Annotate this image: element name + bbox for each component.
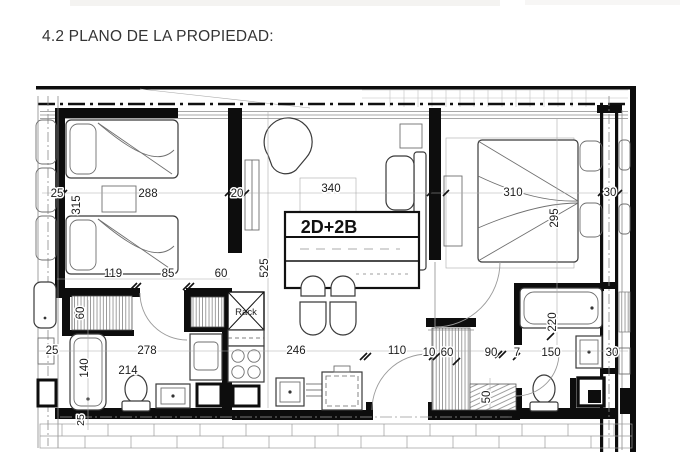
dim-b2-wall: 30 xyxy=(604,187,617,199)
bedroom-2 xyxy=(444,138,602,268)
dim-b1-width: 288 xyxy=(138,188,157,200)
pillow xyxy=(580,141,602,171)
dim-bath1-bottom: 25 xyxy=(75,414,87,426)
oven xyxy=(190,334,222,380)
closet-right xyxy=(191,297,224,327)
dim-entry-a: 10 xyxy=(423,347,436,359)
dim-living-width: 340 xyxy=(321,183,340,195)
sofa-cushion xyxy=(386,156,414,210)
stove xyxy=(228,346,264,382)
entry-door-arc xyxy=(372,354,428,410)
dim-b2-width: 310 xyxy=(503,187,522,199)
bedroom2-door-arc xyxy=(435,262,500,327)
washer xyxy=(197,384,221,406)
brick-strip xyxy=(40,424,632,448)
dim-b1-door: 85 xyxy=(162,268,175,280)
single-bed-2 xyxy=(66,216,178,274)
dim-entry-d: 7 xyxy=(514,347,520,359)
single-bed-1 xyxy=(66,120,178,178)
neighbor-pillow xyxy=(619,140,630,170)
dim-entry-c: 90 xyxy=(485,347,498,359)
rack-label: Rack xyxy=(235,307,257,318)
unit-type-label: 2D+2B xyxy=(301,217,358,237)
dim-b1-wall-left: 25 xyxy=(51,188,64,200)
dim-bath2-wall: 30 xyxy=(606,347,619,359)
bathtub-2 xyxy=(520,288,602,328)
pillow xyxy=(580,203,602,237)
bath1-door-arc xyxy=(140,293,187,340)
document-page: 4.2 PLANO DE LA PROPIEDAD: xyxy=(0,0,680,467)
dim-entry-door: 110 xyxy=(388,345,406,357)
entry-closet xyxy=(432,328,470,410)
dim-bath2-sink: 150 xyxy=(541,347,560,359)
left-neighbor-strip xyxy=(34,96,58,448)
right-neighbor-strip xyxy=(609,96,630,450)
washing-machine xyxy=(322,366,362,410)
toilet-1 xyxy=(125,375,147,403)
dresser xyxy=(444,176,462,246)
floor-plan: 25 315 288 20 119 85 60 60 340 525 310 2… xyxy=(0,0,680,467)
dim-kitchen-width: 246 xyxy=(286,345,305,357)
kitchen-sink xyxy=(276,378,304,406)
side-table xyxy=(400,124,422,148)
dim-neighbor-left: 25 xyxy=(46,345,59,357)
dim-b1-depth: 315 xyxy=(71,195,83,214)
dim-entry-closet: 50 xyxy=(481,391,493,404)
dim-b1-wall-right: 20 xyxy=(231,188,244,200)
toilet-2 xyxy=(533,375,555,403)
dim-entry-b: 60 xyxy=(441,347,454,359)
neighbor-pillow xyxy=(619,204,630,234)
dim-closet-depth: 60 xyxy=(75,307,87,320)
shaft xyxy=(578,378,604,406)
dim-bath1-tub: 140 xyxy=(79,358,91,377)
dim-bath1-toilet: 214 xyxy=(118,365,138,377)
dim-b1-closet-right: 60 xyxy=(215,268,228,280)
nightstand xyxy=(102,186,136,212)
dim-living-depth: 525 xyxy=(259,258,271,277)
counter-cabinet xyxy=(233,386,259,406)
crop-border-right xyxy=(630,86,636,452)
dim-b2-depth: 295 xyxy=(549,208,561,227)
entrance-hall xyxy=(428,328,516,410)
neighbor-bathtub xyxy=(34,282,56,328)
entry-closet-ext xyxy=(470,384,516,410)
neighbor-fixture xyxy=(38,380,56,406)
dim-b1-closet-left: 119 xyxy=(104,268,122,280)
dim-bath1-width: 278 xyxy=(137,345,156,357)
dim-bath2-tub: 220 xyxy=(547,312,559,331)
